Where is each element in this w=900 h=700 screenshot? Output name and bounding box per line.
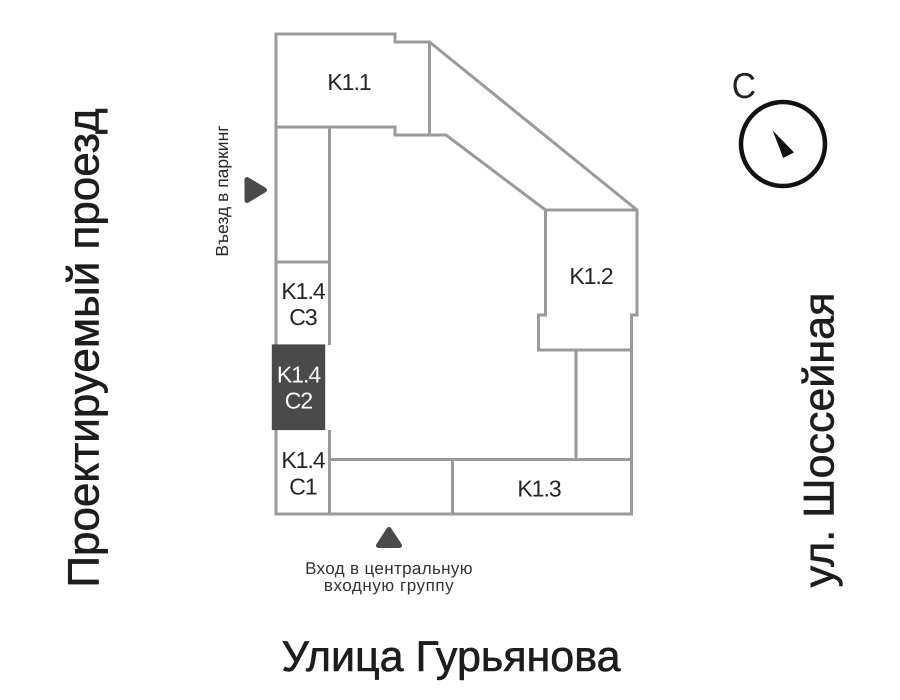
- svg-text:K1.4: K1.4: [281, 278, 326, 304]
- svg-text:K1.2: K1.2: [569, 263, 613, 289]
- svg-text:C3: C3: [289, 304, 317, 330]
- svg-text:ул. Шоссейная: ул. Шоссейная: [796, 293, 844, 588]
- svg-text:входную группу: входную группу: [324, 576, 454, 595]
- svg-text:С: С: [732, 65, 756, 106]
- svg-text:Въезд в паркинг: Въезд в паркинг: [212, 125, 232, 256]
- svg-text:K1.4: K1.4: [277, 362, 322, 388]
- svg-text:K1.3: K1.3: [517, 476, 561, 502]
- svg-text:C2: C2: [285, 388, 313, 414]
- svg-text:K1.4: K1.4: [281, 447, 326, 473]
- svg-text:K1.1: K1.1: [327, 69, 371, 95]
- svg-text:Улица Гурьянова: Улица Гурьянова: [281, 633, 620, 681]
- svg-text:Проектируемый проезд: Проектируемый проезд: [60, 108, 109, 587]
- svg-text:C1: C1: [289, 474, 317, 500]
